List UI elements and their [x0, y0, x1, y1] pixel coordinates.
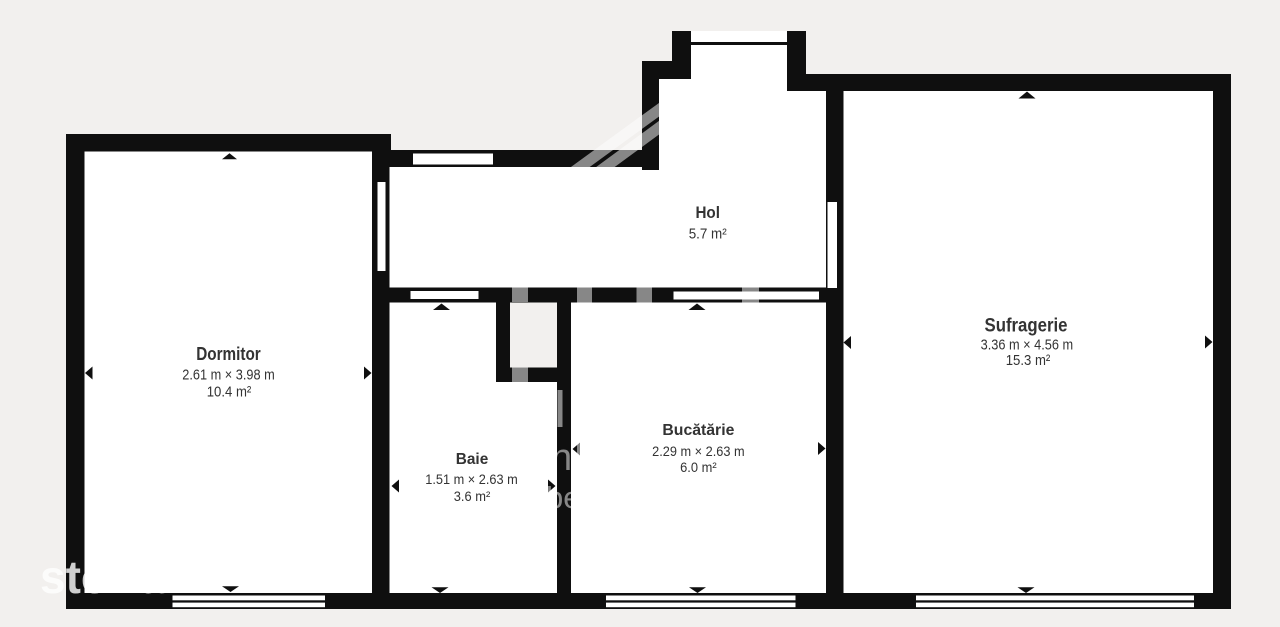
svg-text:Baie: Baie [456, 451, 489, 468]
svg-text:Bucătărie: Bucătărie [662, 422, 734, 439]
svg-text:be: be [546, 480, 580, 515]
svg-text:1.51 m × 2.63 m: 1.51 m × 2.63 m [425, 471, 518, 487]
svg-text:2.61 m × 3.98 m: 2.61 m × 3.98 m [182, 367, 275, 384]
svg-text:15.3 m²: 15.3 m² [1006, 352, 1051, 369]
svg-text:6.0 m²: 6.0 m² [680, 459, 717, 475]
svg-text:10.4 m²: 10.4 m² [207, 383, 252, 400]
svg-text:3.36 m × 4.56 m: 3.36 m × 4.56 m [981, 337, 1074, 354]
svg-text:Dormitor: Dormitor [196, 343, 261, 364]
svg-text:storia: storia [40, 551, 166, 603]
svg-text:Hol: Hol [695, 204, 720, 222]
svg-text:n: n [551, 437, 572, 479]
svg-text:3.6 m²: 3.6 m² [454, 488, 491, 504]
svg-text:5.7 m²: 5.7 m² [689, 226, 727, 242]
svg-text:Sufragerie: Sufragerie [985, 315, 1068, 336]
svg-text:2.29 m × 2.63 m: 2.29 m × 2.63 m [652, 443, 745, 459]
